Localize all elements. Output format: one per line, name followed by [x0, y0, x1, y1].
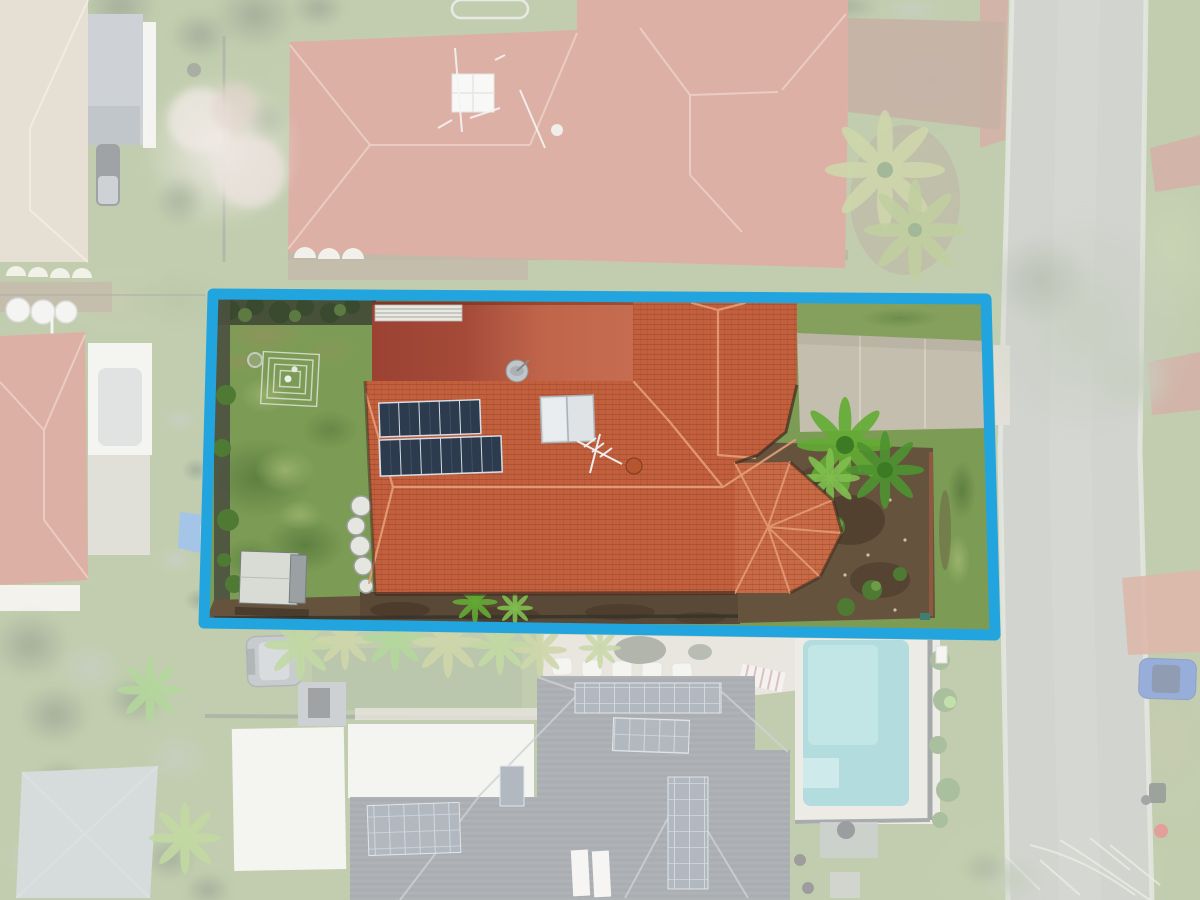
- concrete-driveway: [797, 333, 988, 432]
- right-grass-strip: [933, 442, 992, 628]
- roof-skylight: [540, 395, 595, 443]
- aerial-photo-canvas: [0, 0, 1200, 900]
- garden-ring: [248, 353, 262, 367]
- highlighted-lot: [198, 288, 1001, 641]
- roof-vents: [375, 305, 462, 321]
- roof-vent-cap: [626, 458, 642, 474]
- top-hedge: [214, 297, 376, 325]
- aerial-photo: [0, 0, 1200, 900]
- pool-fence-glimpse: [920, 613, 930, 620]
